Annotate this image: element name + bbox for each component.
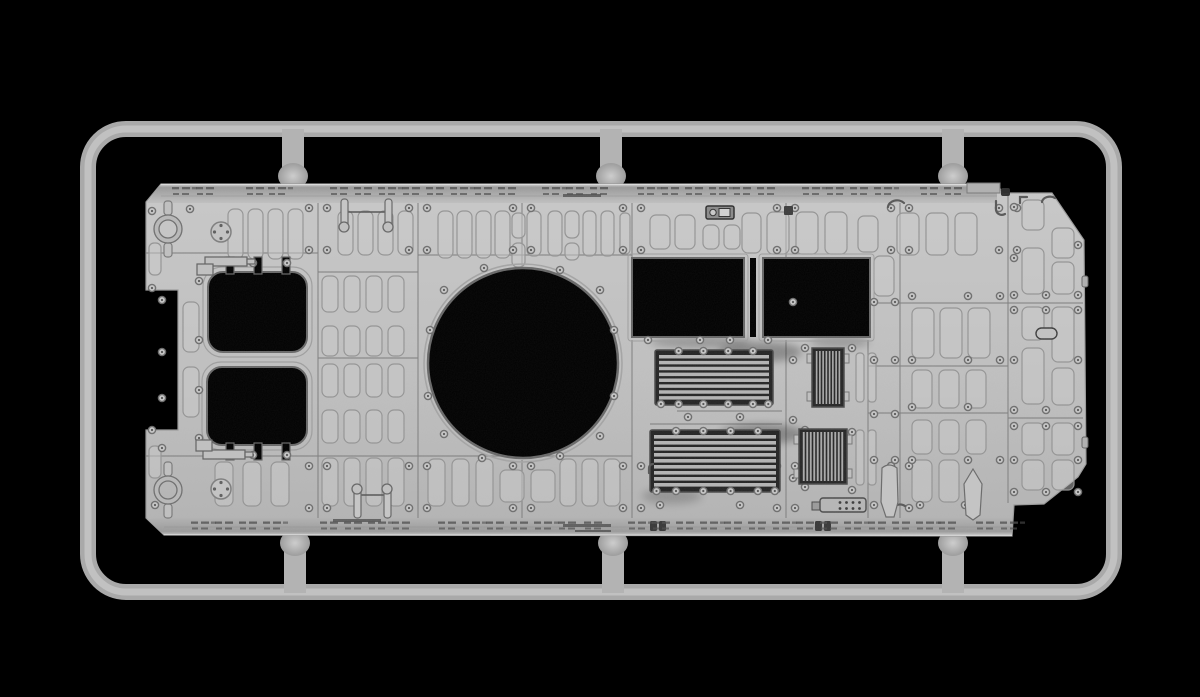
bolt-head-dot [161, 397, 163, 399]
bolt-head-dot [1077, 491, 1079, 493]
plastic-grain-overlay [140, 178, 1092, 542]
bolt-head-dot [161, 299, 163, 301]
model-sprue-render [0, 0, 1200, 697]
bolt-head-dot [161, 351, 163, 353]
render-viewport [0, 0, 1200, 697]
weld-tick [1020, 522, 1025, 524]
